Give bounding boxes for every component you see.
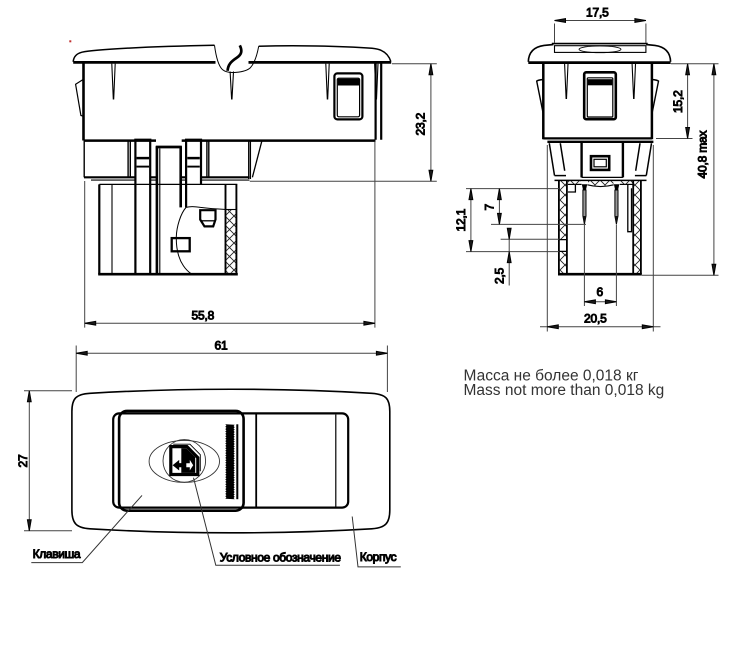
svg-text:Mass not more than 0,018 kg: Mass not more than 0,018 kg [464, 382, 665, 399]
svg-text:61: 61 [215, 339, 228, 353]
svg-text:12,1: 12,1 [454, 208, 468, 231]
svg-text:55,8: 55,8 [192, 309, 215, 323]
svg-text:40,8 max: 40,8 max [696, 131, 710, 179]
svg-text:6: 6 [597, 285, 604, 299]
svg-text:15,2: 15,2 [671, 90, 685, 113]
svg-text:17,5: 17,5 [586, 6, 609, 20]
svg-text:23,2: 23,2 [414, 112, 428, 135]
svg-text:Клавиша: Клавиша [33, 547, 81, 561]
svg-text:7: 7 [483, 204, 497, 211]
svg-text:Условное обозначение: Условное обозначение [220, 550, 342, 564]
svg-text:2,5: 2,5 [493, 267, 507, 284]
svg-text:Корпус: Корпус [360, 550, 397, 564]
svg-text:27: 27 [16, 454, 30, 467]
svg-text:20,5: 20,5 [584, 312, 607, 326]
